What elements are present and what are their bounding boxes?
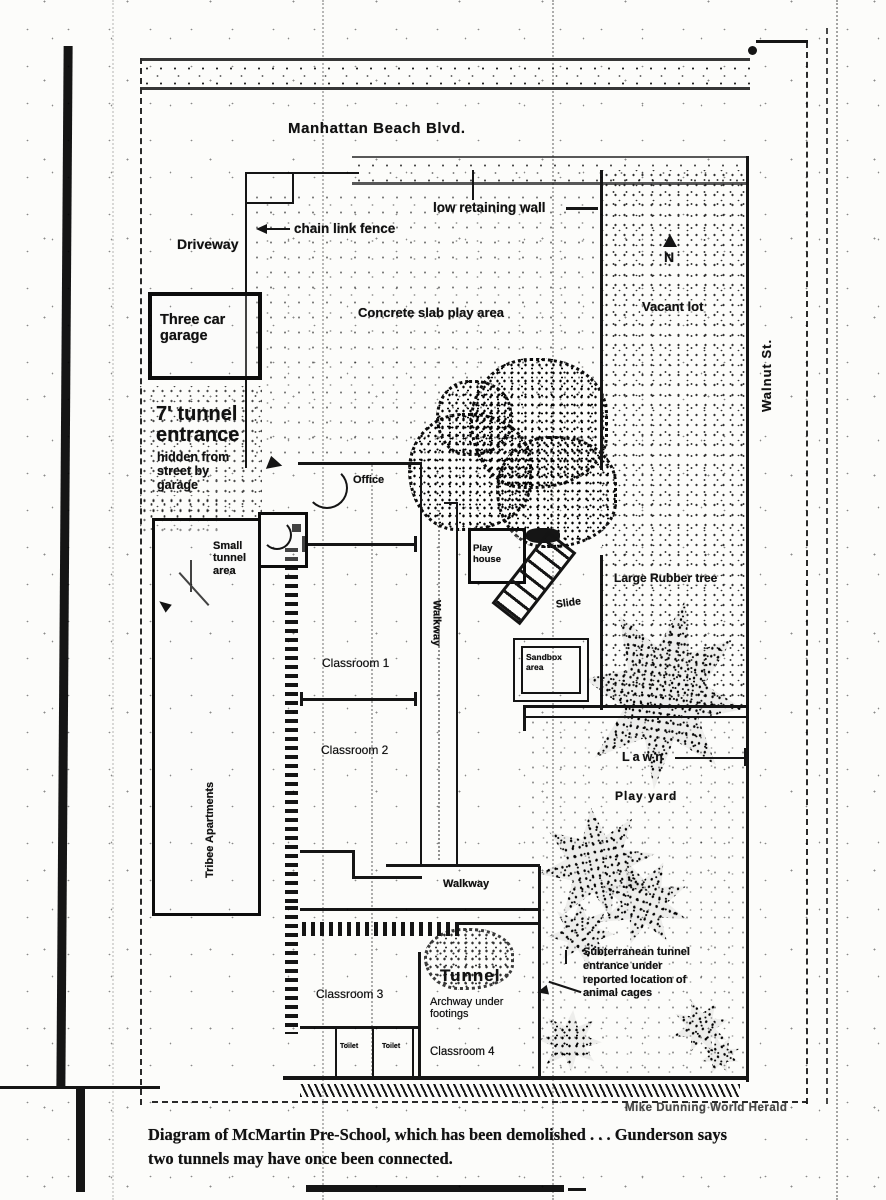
tunnel-entrance-arrow-icon xyxy=(266,456,284,474)
sidewalk-hatch xyxy=(300,1084,740,1097)
vacant-lot-divider xyxy=(600,170,603,470)
diagram-border-right-outer xyxy=(826,28,828,1104)
classroom3-label: Classroom 3 xyxy=(316,988,383,1001)
scanned-newspaper-diagram: Manhattan Beach Blvd. Walnut St. N Three… xyxy=(0,0,886,1200)
door-swing-arc xyxy=(262,520,292,550)
diagram-border-right xyxy=(806,42,808,1104)
driveway-label: Driveway xyxy=(177,237,238,253)
wall xyxy=(414,692,417,706)
chain-link-fence-label: chain link fence xyxy=(294,221,395,236)
wall xyxy=(352,850,355,878)
page-edge-bar xyxy=(76,1086,85,1192)
small-tunnel-label: Small tunnel area xyxy=(213,540,261,577)
diagram-border-top-right xyxy=(756,40,808,43)
border-dot xyxy=(748,46,757,55)
toilet-right-label: Toilet xyxy=(382,1043,400,1051)
subterranean-leader xyxy=(565,950,567,964)
retaining-wall-band xyxy=(352,156,748,185)
diagram-border-left xyxy=(140,58,142,1105)
door-swing-arc xyxy=(306,467,348,509)
photo-credit: Mike Dunning World Herald xyxy=(625,1102,787,1115)
tunnel-entrance-note: hidden from street by garage xyxy=(157,450,253,492)
tree-canopy xyxy=(408,358,613,548)
wall xyxy=(444,502,458,504)
wall xyxy=(298,462,420,465)
page-rule-line xyxy=(306,1185,564,1192)
fence-top xyxy=(245,172,359,174)
lawn-leader xyxy=(675,757,745,759)
walkway-horizontal-label: Walkway xyxy=(443,878,489,890)
diagram-border-top-band xyxy=(140,58,750,90)
fence-gate xyxy=(292,172,294,204)
playyard-left-wall xyxy=(538,866,541,1078)
caption-line2: two tunnels may have once been connected… xyxy=(148,1150,848,1168)
hatched-wall xyxy=(302,922,464,936)
wall xyxy=(456,502,458,867)
wall xyxy=(386,864,540,867)
tree-lobe xyxy=(436,380,512,456)
building-fold-rule xyxy=(371,465,373,1075)
north-label: N xyxy=(664,250,674,266)
chain-link-leader xyxy=(266,228,290,230)
classroom4-label: Classroom 4 xyxy=(430,1046,495,1059)
wall xyxy=(300,1026,420,1029)
play-yard-label: Play yard xyxy=(615,790,677,803)
archway-label: Archway under footings xyxy=(430,996,530,1021)
playyard-top-wall-cap xyxy=(523,705,526,731)
hatched-wall xyxy=(285,548,298,906)
tunnel-entrance-title: 7' tunnel entrance xyxy=(156,404,274,446)
column-rule xyxy=(112,0,114,1200)
low-retaining-wall-label: low retaining wall xyxy=(433,200,546,215)
wall xyxy=(412,1026,414,1078)
page-rule-line xyxy=(568,1188,586,1191)
retaining-wall-leader xyxy=(472,170,474,200)
north-arrow-icon xyxy=(663,234,677,247)
page-rule-line xyxy=(0,1086,160,1089)
column-rule xyxy=(322,0,324,1200)
toilet-left-label: Toilet xyxy=(340,1043,358,1051)
rubber-tree-label: Large Rubber tree xyxy=(612,572,719,585)
apartments-label: Tribee Apartments xyxy=(204,738,216,878)
walkway-vertical-label: Walkway xyxy=(430,600,442,730)
chain-link-arrow-icon xyxy=(256,224,267,234)
office-label: Office xyxy=(353,474,384,486)
retaining-wall-leader xyxy=(566,207,598,210)
wall xyxy=(414,536,417,552)
wall xyxy=(300,698,417,701)
lawn-leader xyxy=(744,748,746,766)
vacant-lot-divider xyxy=(600,555,603,710)
wall xyxy=(300,850,354,853)
wall xyxy=(300,908,540,911)
play-house-label: Play house xyxy=(473,544,507,565)
playyard-top-wall xyxy=(523,705,748,718)
wall xyxy=(456,922,540,925)
caption-line1: Diagram of McMartin Pre-School, which ha… xyxy=(148,1126,848,1144)
subterranean-label: Subterranean tunnel entrance under repor… xyxy=(583,946,703,1001)
classroom2-label: Classroom 2 xyxy=(321,744,388,757)
wall xyxy=(418,952,421,1078)
vacant-lot-label: Vacant lot xyxy=(640,300,705,315)
wall xyxy=(420,462,422,867)
wall xyxy=(352,876,422,879)
slide-label: Slide xyxy=(555,596,581,611)
tunnel-label: Tunnel xyxy=(440,966,500,985)
column-rule xyxy=(836,0,838,1200)
wall xyxy=(372,1026,374,1078)
page-edge-bar xyxy=(56,46,72,1088)
concrete-slab-label: Concrete slab play area xyxy=(358,306,504,321)
hatched-wall xyxy=(285,906,298,1034)
wall xyxy=(300,692,303,706)
fence-gate xyxy=(247,202,294,204)
playyard-bottom-wall xyxy=(283,1076,749,1080)
street-label-walnut-st: Walnut St. xyxy=(760,320,775,412)
classroom1-label: Classroom 1 xyxy=(322,657,389,670)
street-label-manhattan-beach-blvd: Manhattan Beach Blvd. xyxy=(288,121,466,138)
property-wall-right xyxy=(746,156,749,1082)
sandbox-label: Sandbox area xyxy=(526,653,574,672)
wall xyxy=(302,543,417,546)
wall xyxy=(335,1026,337,1078)
garage-label: Three car garage xyxy=(160,312,248,344)
lawn-label: Lawn xyxy=(622,750,666,764)
